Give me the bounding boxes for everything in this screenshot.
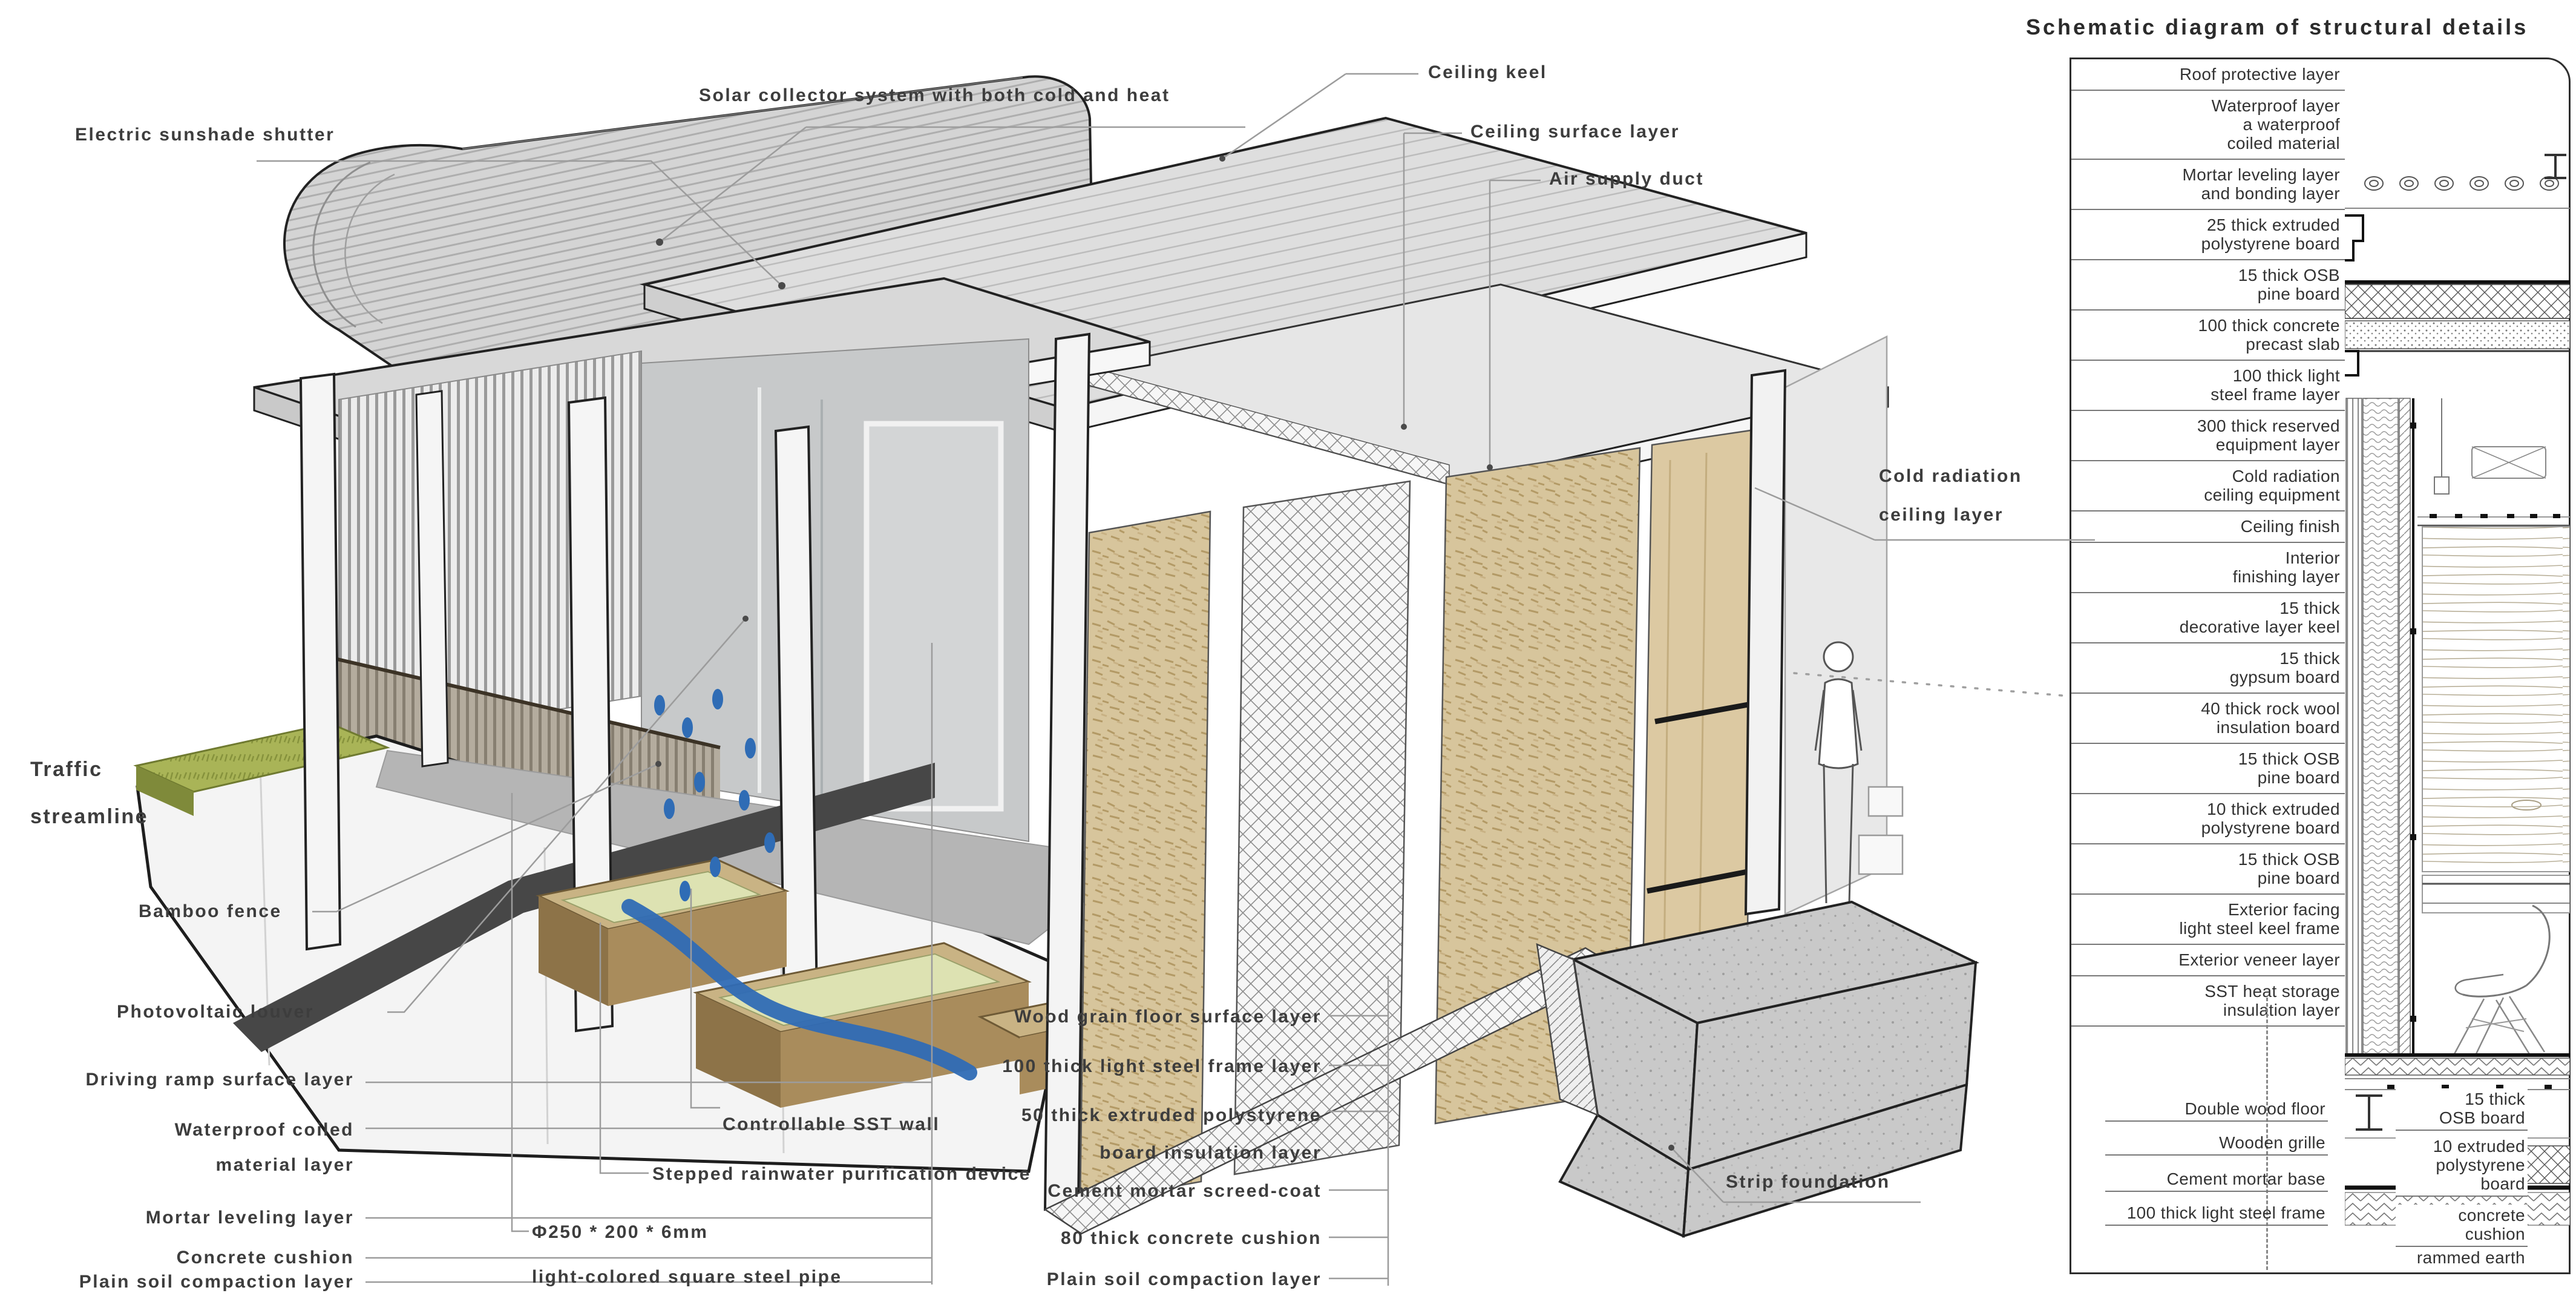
layer-label: 10 thick extruded polystyrene board (2071, 794, 2345, 844)
layer-label: 15 thick OSB pine board (2071, 744, 2345, 794)
layer-label: Waterproof layer a waterproof coiled mat… (2071, 91, 2345, 160)
callout-stepped-rainwater: Stepped rainwater purification device (652, 1162, 1031, 1186)
callout-bamboo-fence: Bamboo fence (139, 900, 282, 924)
callout-cold-radiation-ceiling: Cold radiation ceiling layer (1879, 457, 2022, 535)
callout-strip-foundation: Strip foundation (1726, 1170, 1890, 1194)
callout-photovoltaic-louver: Photovoltaic louver (117, 1000, 314, 1024)
bottom-label-concrete-cushion: concrete cushion (2396, 1205, 2528, 1247)
bottom-label-rammed-earth: rammed earth (2396, 1247, 2528, 1269)
layer-label: Interior finishing layer (2071, 543, 2345, 593)
callout-polystyrene-50: 50 thick extruded polystyrene board insu… (1021, 1097, 1322, 1172)
callout-driving-ramp: Driving ramp surface layer (85, 1068, 354, 1092)
callout-wood-grain-floor: Wood grain floor surface layer (1014, 1005, 1322, 1029)
layer-label: 40 thick rock wool insulation board (2071, 694, 2345, 744)
wall-layer-strips (2346, 398, 2416, 1055)
layer-label: Exterior veneer layer (2071, 945, 2345, 976)
layer-label: 15 thick gypsum board (2071, 643, 2345, 694)
bottom-label-light-steel-frame: 100 thick light steel frame (2105, 1202, 2328, 1226)
axonometric-illustration (0, 0, 2021, 1296)
structural-details-sheet: { "panel": { "title": "Schematic diagram… (0, 0, 2576, 1296)
bottom-label-extruded-polystyrene: 10 extruded polystyrene board (2396, 1136, 2528, 1197)
interior-wall (1746, 337, 1903, 914)
detail-section-box: Roof protective layer Waterproof layer a… (2070, 58, 2571, 1274)
callout-concrete-cushion-80: 80 thick concrete cushion (1061, 1226, 1322, 1251)
callout-solar-collector: Solar collector system with both cold an… (699, 84, 1170, 108)
layer-label: SST heat storage insulation layer (2071, 976, 2345, 1027)
bottom-label-double-wood-floor: Double wood floor (2105, 1098, 2328, 1122)
callout-steel-frame-100: 100 thick light steel frame layer (1002, 1054, 1322, 1079)
layer-label: 300 thick reserved equipment layer (2071, 411, 2345, 461)
layer-label: 15 thick OSB pine board (2071, 844, 2345, 895)
bottom-label-osb-board: 15 thick OSB board (2396, 1088, 2528, 1131)
callout-mortar-leveling: Mortar leveling layer (146, 1206, 354, 1230)
layer-label: Roof protective layer (2071, 59, 2345, 91)
layer-label: Ceiling finish (2071, 511, 2345, 543)
layer-label: 15 thick decorative layer keel (2071, 593, 2345, 643)
interior-elevation (2417, 398, 2570, 913)
callout-air-supply-duct: Air supply duct (1549, 167, 1704, 191)
structural-details-panel: Schematic diagram of structural details … (2021, 0, 2576, 1296)
callout-plain-soil-right: Plain soil compaction layer (1047, 1268, 1322, 1292)
bottom-label-wooden-grille: Wooden grille (2105, 1132, 2328, 1156)
roof-buildup (2345, 155, 2570, 375)
callout-cement-screed: Cement mortar screed-coat (1047, 1179, 1322, 1203)
callout-pipe-spec: Φ250 * 200 * 6mm (532, 1220, 708, 1245)
layer-label: Mortar leveling layer and bonding layer (2071, 160, 2345, 210)
bottom-label-cement-mortar-base: Cement mortar base (2105, 1168, 2328, 1192)
corner-post (1746, 370, 1785, 914)
callout-concrete-cushion: Concrete cushion (177, 1246, 354, 1270)
callout-pipe-desc: light-colored square steel pipe (532, 1265, 842, 1289)
layer-label-column: Roof protective layer Waterproof layer a… (2071, 59, 2345, 1027)
callout-electric-sunshade-shutter: Electric sunshade shutter (75, 123, 335, 147)
layer-label: Exterior facing light steel keel frame (2071, 895, 2345, 945)
callout-controllable-sst-wall: Controllable SST wall (723, 1113, 940, 1137)
layer-label: 100 thick light steel frame layer (2071, 361, 2345, 411)
callout-waterproof-coiled: Waterproof coiled material layer (175, 1113, 354, 1183)
layer-label: 15 thick OSB pine board (2071, 260, 2345, 311)
chair-sketch (2454, 906, 2549, 1055)
callout-ceiling-surface-layer: Ceiling surface layer (1470, 120, 1680, 144)
callout-plain-soil-left: Plain soil compaction layer (79, 1270, 354, 1294)
layer-label: 100 thick concrete precast slab (2071, 311, 2345, 361)
layer-label: 25 thick extruded polystyrene board (2071, 210, 2345, 260)
layer-label: Cold radiation ceiling equipment (2071, 461, 2345, 511)
panel-title: Schematic diagram of structural details (2026, 13, 2574, 41)
callout-traffic-streamline: Traffic streamline (30, 746, 148, 840)
callout-ceiling-keel: Ceiling keel (1428, 61, 1547, 85)
